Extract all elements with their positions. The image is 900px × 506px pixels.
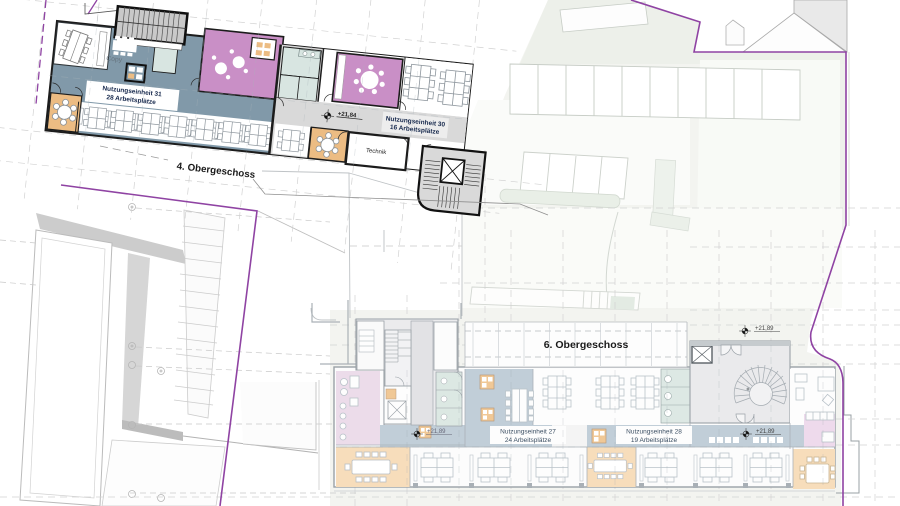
svg-text:+21,89: +21,89 [756, 429, 775, 435]
svg-text:+21,89: +21,89 [755, 326, 774, 332]
svg-text:24 Arbeitsplätze: 24 Arbeitsplätze [505, 437, 552, 444]
svg-text:6. Obergeschoss: 6. Obergeschoss [544, 339, 629, 351]
svg-text:Nutzungseinheit 27: Nutzungseinheit 27 [500, 429, 556, 436]
svg-text:+21,89: +21,89 [427, 429, 446, 435]
svg-text:19 Arbeitsplätze: 19 Arbeitsplätze [631, 437, 678, 444]
svg-text:Nutzungseinheit 28: Nutzungseinheit 28 [626, 429, 682, 436]
